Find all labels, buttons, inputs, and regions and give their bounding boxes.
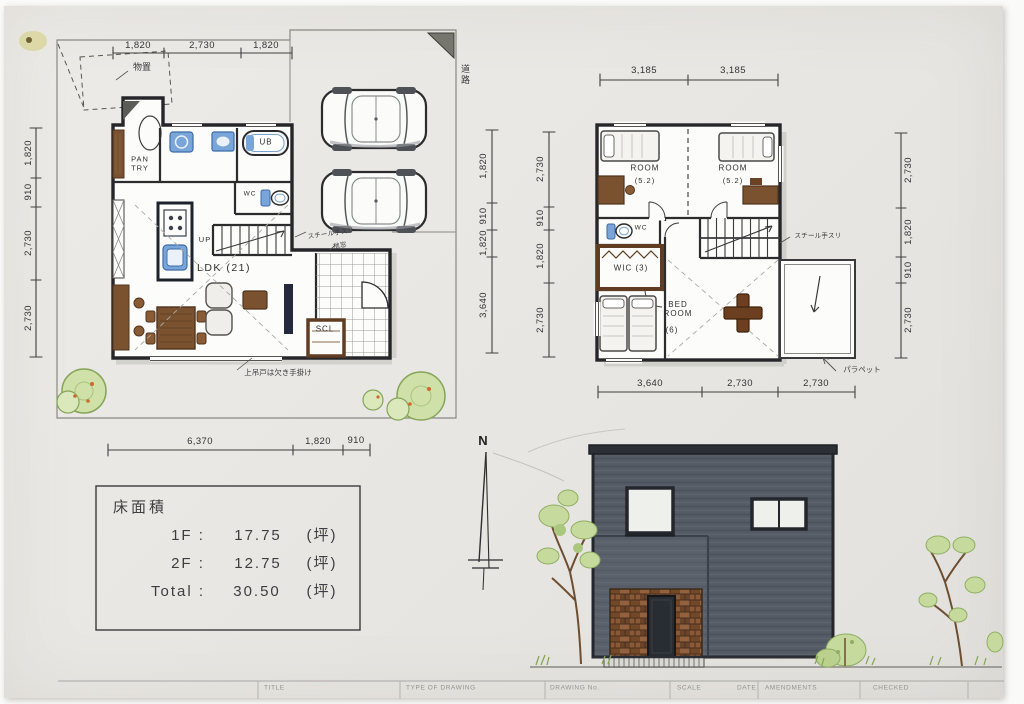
area-row-label: 1F :: [171, 528, 205, 545]
entry-step-grate: [604, 657, 704, 667]
dimension-label: 2,730: [727, 379, 753, 389]
note-door: 上吊戸は欠き手掛け: [244, 369, 312, 377]
room-size-label: (5.2): [635, 177, 655, 185]
titleblock-field: DRAWING No.: [550, 685, 600, 692]
room-label-ldk: LDK (21): [197, 263, 251, 275]
dimension-label: 1,820: [125, 41, 151, 51]
titleblock-field: TYPE OF DRAWING: [406, 685, 476, 692]
dimension-label: 910: [479, 207, 489, 224]
site-plan-1f: [19, 30, 456, 420]
titleblock-field: SCALE: [677, 685, 701, 692]
title-block-lines: [58, 681, 1004, 699]
dimension-label: 6,370: [187, 437, 213, 447]
area-row-value: 30.50: [233, 584, 281, 601]
dimension-label: 2,730: [24, 230, 34, 256]
balcony: [780, 260, 855, 358]
entrance-genkan: [308, 253, 388, 356]
room-label: ROOM: [631, 165, 660, 174]
photo-background: 1,820 2,730 1,820 1,820 910 2,730 2,730 …: [0, 0, 1024, 704]
dimension-label: 2,730: [536, 307, 546, 333]
note-parapet: パラペット: [843, 366, 881, 374]
area-row-value: 17.75: [234, 528, 282, 545]
window-icon: [625, 488, 675, 536]
titleblock-field: AMENDMENTS: [765, 685, 817, 692]
area-row-label: 2F :: [171, 556, 205, 573]
dimension-label: 2,730: [536, 156, 546, 182]
room-label-bedroom: BED ROOM: [659, 300, 697, 318]
dimension-label: 1,820: [904, 219, 914, 245]
dimension-label: 1,820: [479, 153, 489, 179]
room-label-scl: SCL: [316, 326, 335, 335]
area-row-unit: (坪): [307, 556, 338, 573]
dimension-label: 910: [24, 183, 34, 200]
area-row-unit: (坪): [307, 584, 338, 601]
north-label: N: [478, 434, 487, 448]
kitchen-island: [158, 203, 192, 280]
titleblock-field: CHECKED: [873, 685, 909, 692]
dimension-label: 910: [904, 261, 914, 278]
titleblock-field: TITLE: [264, 685, 285, 692]
dimension-label: 2,730: [189, 41, 215, 51]
stairs-up-label: UP: [199, 236, 211, 244]
road-label: 道路: [459, 64, 469, 86]
toilet-icon: [607, 224, 632, 239]
roof-parapet: [589, 445, 837, 454]
tree-icon: [363, 372, 445, 420]
area-row-value: 12.75: [234, 556, 282, 573]
room-label-wc: WC: [244, 190, 257, 197]
window-icon: [752, 499, 806, 529]
room-label-wic: WIC (3): [614, 265, 649, 274]
room-label-wc: WC: [635, 224, 648, 231]
dimension-label: 2,730: [904, 307, 914, 333]
corner-hatch-mark: [428, 33, 454, 58]
room-size-label: (5.2): [723, 177, 743, 185]
room-label-pantry: PAN TRY: [125, 155, 155, 172]
dimension-label: 1,820: [24, 140, 34, 166]
dimension-label: 2,730: [803, 379, 829, 389]
corner-moss: [19, 31, 47, 51]
dimension-label: 3,185: [631, 66, 657, 76]
dimension-label: 3,640: [479, 292, 489, 318]
dimension-label: 910: [347, 436, 364, 446]
area-row-label: Total :: [151, 584, 205, 601]
tree-icon: [57, 369, 106, 413]
room-size-label: (6): [666, 327, 679, 336]
dimension-label: 910: [536, 209, 546, 226]
floor-plan-2f: [594, 122, 856, 372]
dimension-label: 1,820: [536, 243, 546, 269]
storage-label: 物置: [133, 63, 151, 73]
dimension-label: 2,730: [24, 305, 34, 331]
titleblock-field: DATE: [737, 685, 756, 692]
dimension-label: 1,820: [305, 437, 331, 447]
dimension-label: 1,820: [479, 230, 489, 256]
dimension-label: 3,640: [637, 379, 663, 389]
room-label-ub: UB: [259, 139, 272, 148]
note-handrail: スチール手スリ: [795, 232, 842, 239]
entrance: [610, 589, 702, 657]
dimension-label: 1,820: [253, 41, 279, 51]
room-label: ROOM: [719, 165, 748, 174]
dimension-label: 3,185: [720, 66, 746, 76]
dimension-label: 2,730: [904, 157, 914, 183]
car-icon: [322, 87, 426, 233]
area-row-unit: (坪): [307, 528, 338, 545]
area-table-title: 床面積: [113, 500, 167, 517]
